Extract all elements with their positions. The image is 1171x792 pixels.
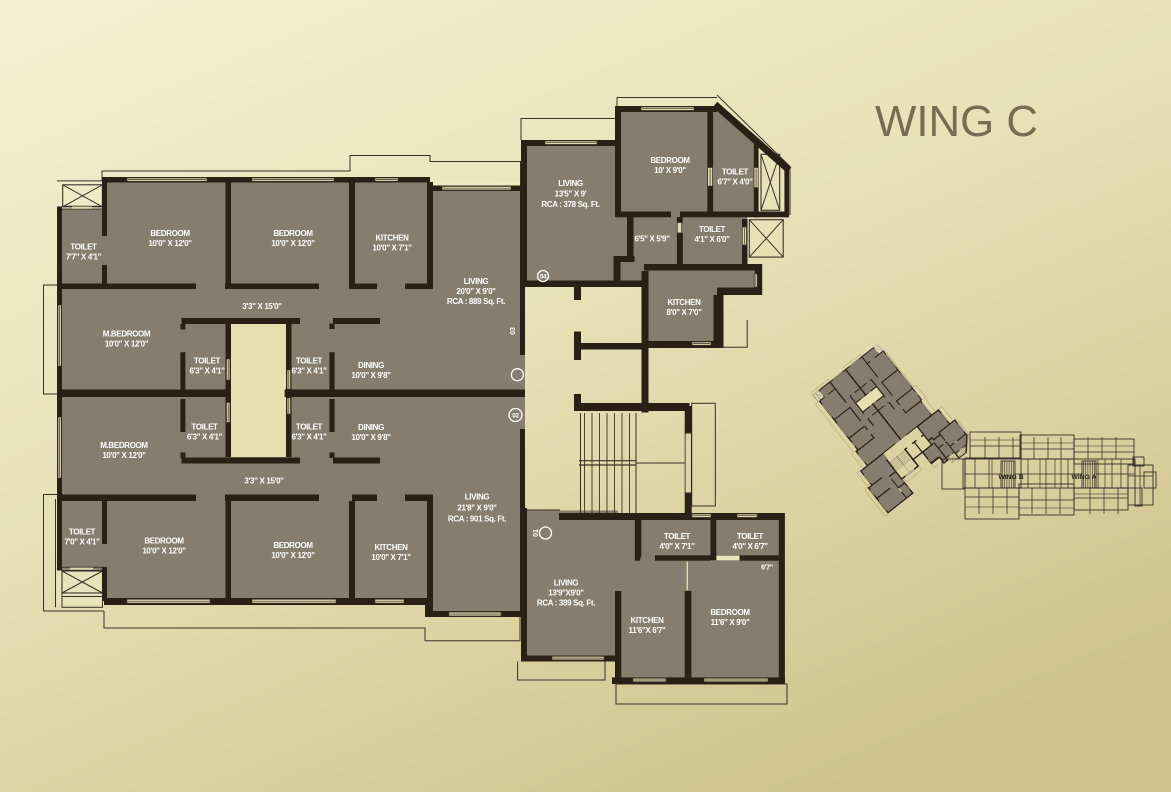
svg-text:BEDROOM: BEDROOM [273,229,313,238]
svg-text:TOILET: TOILET [191,423,218,432]
svg-text:3'3" X 15'0": 3'3" X 15'0" [244,477,284,486]
svg-text:10'0" X 12'0": 10'0" X 12'0" [271,239,315,248]
svg-text:RCA : 389 Sq. Ft.: RCA : 389 Sq. Ft. [537,599,595,608]
svg-text:13'9"X9'0": 13'9"X9'0" [548,589,584,598]
svg-text:TOILET: TOILET [722,168,749,177]
svg-text:10'0" X 12'0": 10'0" X 12'0" [271,551,315,560]
svg-text:10' X 9'0": 10' X 9'0" [654,166,686,175]
svg-text:6'7" X 4'0": 6'7" X 4'0" [717,178,753,187]
svg-text:10'0" X 7'1": 10'0" X 7'1" [372,244,412,253]
svg-text:10'0" X 12'0": 10'0" X 12'0" [102,451,146,460]
svg-text:20'0" X 9'0": 20'0" X 9'0" [456,287,496,296]
svg-text:4'1" X 6'0": 4'1" X 6'0" [694,235,730,244]
svg-text:6'3" X 4'1": 6'3" X 4'1" [291,367,327,376]
svg-text:8'0" X 7'0": 8'0" X 7'0" [666,308,702,317]
svg-text:KITCHEN: KITCHEN [374,543,408,552]
svg-text:10'0" X 12'0": 10'0" X 12'0" [142,547,186,556]
svg-text:KITCHEN: KITCHEN [667,298,701,307]
svg-text:6'7": 6'7" [761,563,773,572]
svg-text:TOILET: TOILET [296,423,323,432]
svg-text:3'3" X 15'0": 3'3" X 15'0" [242,302,282,311]
svg-text:WING A: WING A [1071,474,1096,481]
svg-text:BEDROOM: BEDROOM [273,541,313,550]
svg-text:BEDROOM: BEDROOM [150,229,190,238]
svg-text:LIVING: LIVING [465,493,490,502]
svg-text:10'0" X 9'8": 10'0" X 9'8" [351,371,391,380]
svg-text:TOILET: TOILET [70,243,97,252]
svg-text:10'0" X 12'0": 10'0" X 12'0" [105,340,149,349]
svg-text:RCA : 901 Sq. Ft.: RCA : 901 Sq. Ft. [448,515,506,524]
svg-text:6'5" X 5'9": 6'5" X 5'9" [634,235,670,244]
svg-text:RCA : 378 Sq. Ft.: RCA : 378 Sq. Ft. [541,200,599,209]
svg-text:BEDROOM: BEDROOM [144,537,184,546]
svg-text:11'6"X 6'7": 11'6"X 6'7" [629,626,666,635]
svg-text:10'0" X 7'1": 10'0" X 7'1" [371,553,411,562]
svg-text:M.BEDROOM: M.BEDROOM [103,330,151,339]
svg-text:6'3" X 4'1": 6'3" X 4'1" [291,433,327,442]
svg-text:7'0" X 4'1": 7'0" X 4'1" [64,538,100,547]
svg-text:10'0" X 9'8": 10'0" X 9'8" [351,433,391,442]
svg-text:LIVING: LIVING [558,179,583,188]
svg-text:TOILET: TOILET [69,528,96,537]
svg-text:01: 01 [533,529,540,537]
svg-text:WING B: WING B [998,474,1023,481]
svg-text:DINING: DINING [358,423,384,432]
svg-text:7'7" X 4'1": 7'7" X 4'1" [66,253,102,262]
svg-text:4'0" X 7'1": 4'0" X 7'1" [659,542,695,551]
svg-text:KITCHEN: KITCHEN [375,234,409,243]
svg-text:6'3" X 4'1": 6'3" X 4'1" [189,367,225,376]
svg-text:11'6" X 9'0": 11'6" X 9'0" [711,618,750,627]
svg-text:10'0" X 12'0": 10'0" X 12'0" [148,239,192,248]
svg-text:KITCHEN: KITCHEN [630,616,664,625]
svg-text:03: 03 [510,327,517,335]
svg-text:04: 04 [540,274,547,281]
svg-text:TOILET: TOILET [296,357,323,366]
svg-text:TOILET: TOILET [194,357,221,366]
svg-text:21'8" X 9'0": 21'8" X 9'0" [457,504,497,513]
svg-text:BEDROOM: BEDROOM [650,156,690,165]
svg-text:02: 02 [512,413,519,420]
svg-text:4'0" X 6'7": 4'0" X 6'7" [732,542,768,551]
svg-text:LIVING: LIVING [554,579,579,588]
svg-text:LIVING: LIVING [464,277,489,286]
svg-text:TOILET: TOILET [664,532,691,541]
svg-text:6'3" X 4'1": 6'3" X 4'1" [187,433,223,442]
svg-text:TOILET: TOILET [699,225,726,234]
svg-text:DINING: DINING [358,361,384,370]
svg-text:BEDROOM: BEDROOM [710,608,750,617]
svg-text:TOILET: TOILET [737,532,764,541]
svg-text:M.BEDROOM: M.BEDROOM [100,441,148,450]
svg-text:WING C: WING C [875,97,1038,146]
svg-text:13'5" X 9': 13'5" X 9' [555,190,587,199]
svg-text:RCA : 889 Sq. Ft.: RCA : 889 Sq. Ft. [447,297,505,306]
